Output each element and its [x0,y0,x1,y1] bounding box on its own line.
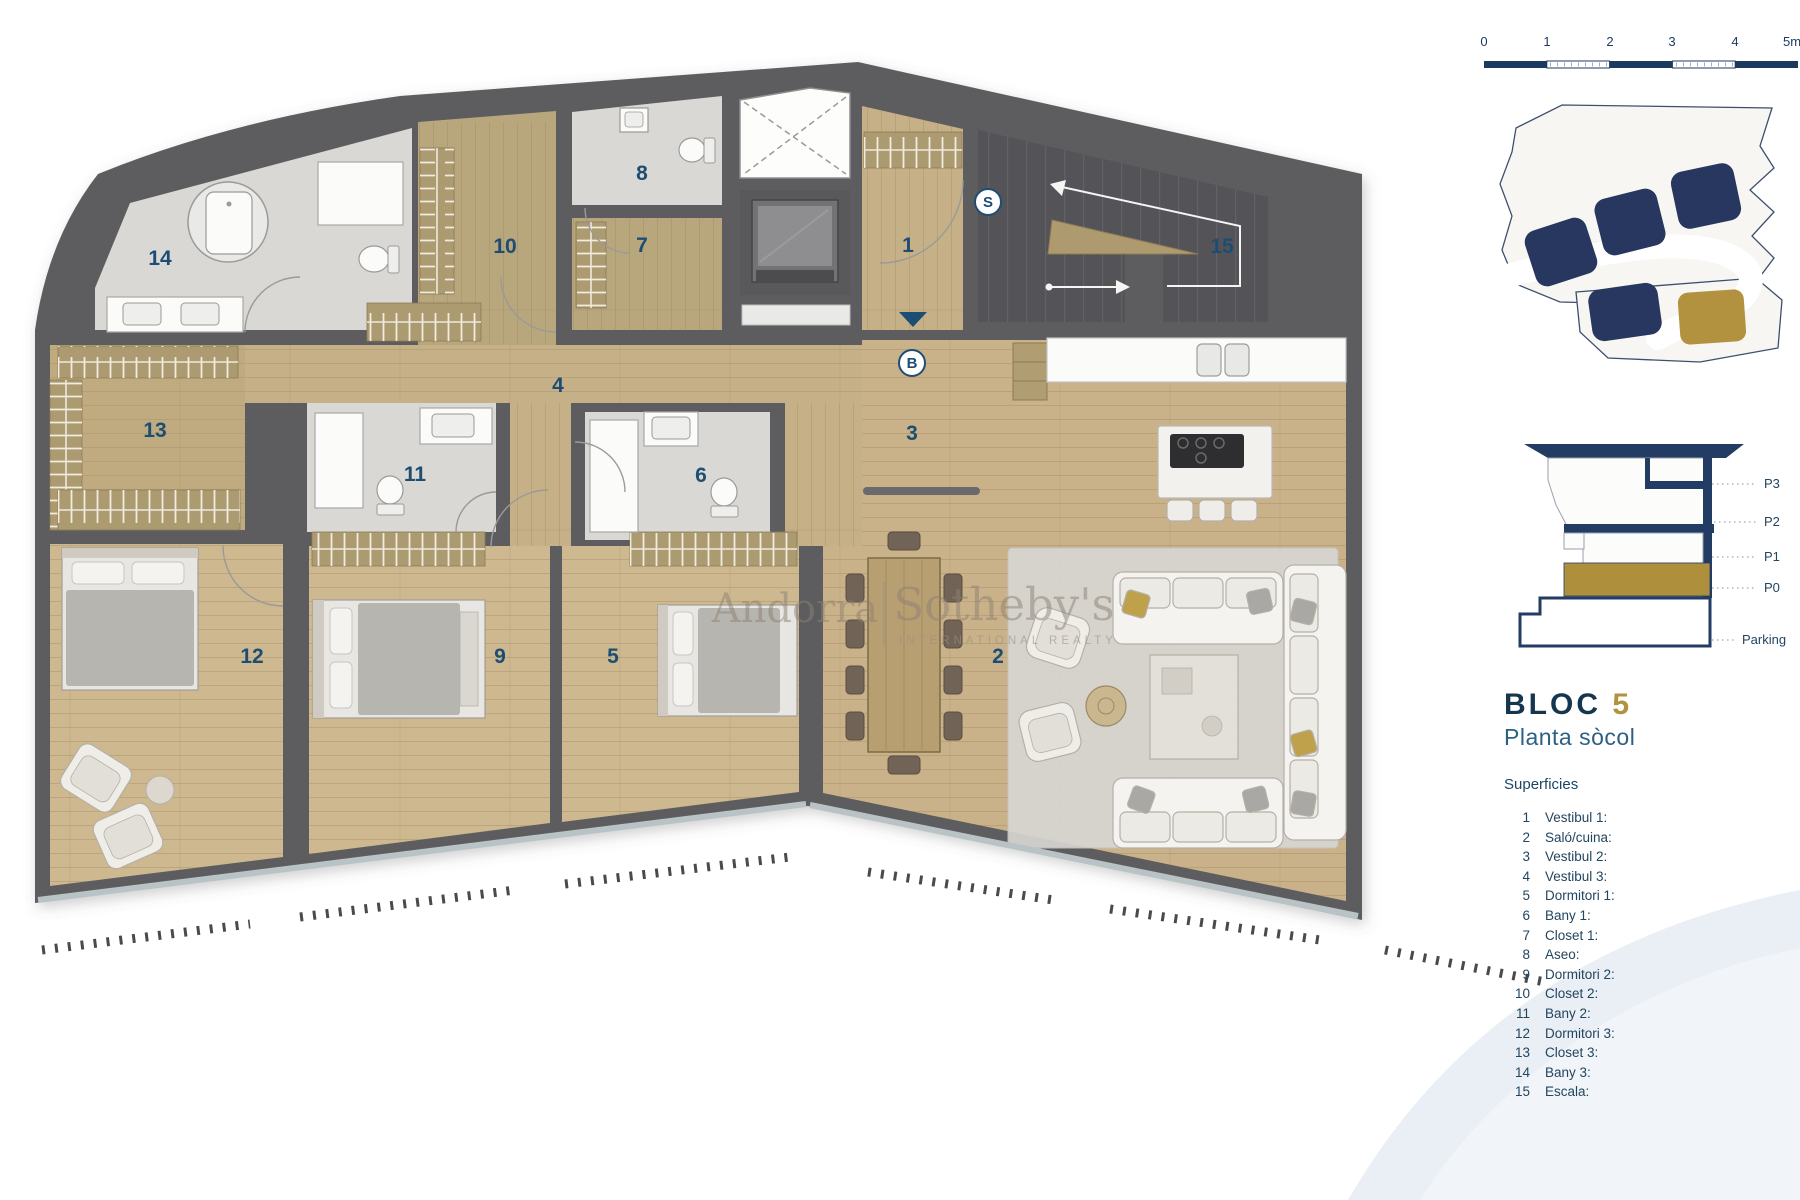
svg-text:5m: 5m [1783,34,1800,49]
legend-item: 3Vestibul 2: [1504,847,1789,867]
svg-text:2: 2 [1606,34,1613,49]
label-vestibul-1: 1 [902,234,914,257]
scale-bar: 0 1 2 3 4 5m [1480,34,1800,68]
label-vestibul-2: 3 [906,422,918,445]
dormitori1-closet-strip [630,532,797,566]
site-plan-sketch [1500,105,1782,362]
section-label-p1: P1 [1764,549,1780,564]
block-word: BLOC [1504,688,1601,721]
section-parking-outline [1520,598,1710,646]
legend-list: 1Vestibul 1: 2Saló/cuina: 3Vestibul 2: 4… [1504,808,1789,1102]
label-bany-1: 6 [695,464,707,487]
legend-item: 2Saló/cuina: [1504,828,1789,848]
watermark-andorra: Andorra [711,586,878,632]
svg-text:4: 4 [1731,34,1738,49]
label-dormitori-1: 5 [607,645,619,668]
site-building-bloc5-highlight [1677,289,1746,345]
bed-dormitori3 [62,548,198,690]
section-label-p0: P0 [1764,580,1780,595]
label-dormitori-2: 9 [494,645,506,668]
label-dormitori-3: 12 [240,645,263,668]
tv-room [740,190,850,325]
svg-text:3: 3 [1668,34,1675,49]
legend-item: 8Aseo: [1504,945,1789,965]
label-bany-2: 11 [404,463,427,486]
side-table-round [1086,686,1126,726]
legend-item: 7Closet 1: [1504,926,1789,946]
elevator [740,88,850,178]
legend-item: 15Escala: [1504,1082,1789,1102]
legend-item: 10Closet 2: [1504,984,1789,1004]
island-stools [1167,500,1257,521]
floor-plan: 1 2 3 4 5 6 7 8 9 10 11 12 13 14 15 S B … [35,62,1545,982]
kitchen-sink [1197,344,1221,376]
section-diagram: P3 P2 P1 P0 Parking [1520,444,1786,647]
label-closet-1: 7 [636,234,648,257]
legend-item: 4Vestibul 3: [1504,867,1789,887]
kitchen-tall-cabinet [1013,343,1047,400]
sofa-bottom [1113,778,1283,848]
watermark-sothebys: Sotheby's [893,578,1114,631]
section-label-p3: P3 [1764,476,1780,491]
block-title: BLOC 5 [1504,688,1789,722]
svg-text:1: 1 [1543,34,1550,49]
legend-heading: Superficies [1504,776,1789,793]
sofa-right [1284,565,1346,840]
label-escala: 15 [1210,235,1234,258]
block-number: 5 [1612,688,1632,721]
floorplan-page: 1 2 3 4 5 6 7 8 9 10 11 12 13 14 15 S B … [0,0,1800,1200]
closet1-wardrobe [576,222,606,308]
sofa-top [1113,572,1283,644]
corridor-wardrobe [367,303,481,341]
title-block: BLOC 5 Planta sòcol Superficies 1Vestibu… [1504,688,1789,1102]
section-p0-highlight [1564,563,1710,596]
label-salo-cuina: 2 [992,645,1004,668]
watermark-subtitle: INTERNATIONAL REALTY [899,635,1117,647]
legend-item: 12Dormitori 3: [1504,1024,1789,1044]
section-label-p2: P2 [1764,514,1780,529]
legend-item: 6Bany 1: [1504,906,1789,926]
sliding-door-track [863,487,980,495]
label-bany-3: 14 [148,247,172,270]
legend-item: 11Bany 2: [1504,1004,1789,1024]
label-vestibul-3: 4 [552,374,564,397]
legend-item: 14Bany 3: [1504,1063,1789,1083]
floor-name: Planta sòcol [1504,724,1789,751]
legend-item: 13Closet 3: [1504,1043,1789,1063]
label-aseo: 8 [636,162,648,185]
legend-item: 1Vestibul 1: [1504,808,1789,828]
legend-item: 9Dormitori 2: [1504,965,1789,985]
marker-s: S [983,194,993,211]
svg-text:0: 0 [1480,34,1487,49]
closet2-wardrobe [420,148,454,294]
bed-dormitori2 [313,600,485,718]
dormitori2-closet-strip [312,532,485,566]
label-closet-2: 10 [493,235,516,258]
marker-b: B [907,355,918,372]
section-label-parking: Parking [1742,632,1786,647]
vestibul1-wardrobe [864,132,962,168]
label-closet-3: 13 [143,419,166,442]
legend-item: 5Dormitori 1: [1504,886,1789,906]
section-leader-lines [1712,484,1756,640]
